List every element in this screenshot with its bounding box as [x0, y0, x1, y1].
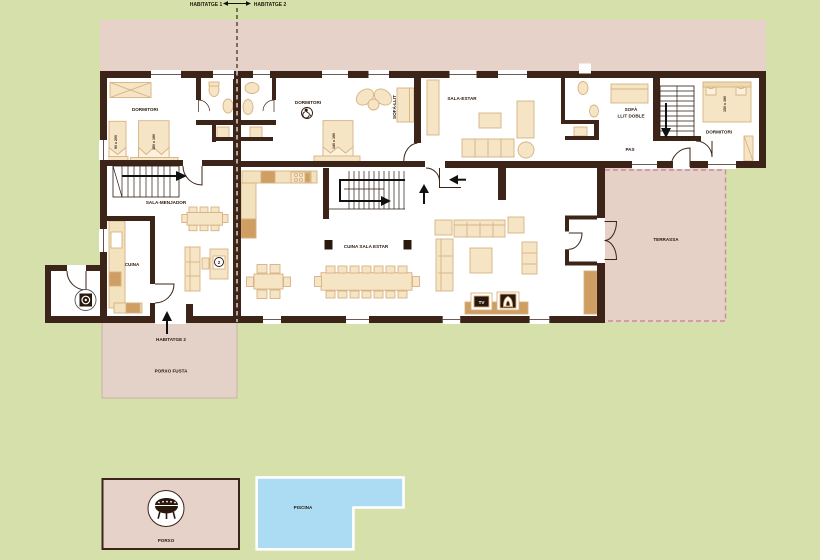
svg-text:SOFÀ-LLIT: SOFÀ-LLIT	[391, 95, 397, 119]
svg-text:90 x 200: 90 x 200	[114, 135, 118, 149]
svg-text:CUINA SALA ESTAR: CUINA SALA ESTAR	[344, 244, 389, 249]
svg-text:SALA-MENJADOR: SALA-MENJADOR	[146, 200, 187, 205]
svg-text:DORMITORI: DORMITORI	[295, 100, 321, 105]
svg-text:PORXO FUSTA: PORXO FUSTA	[155, 369, 189, 374]
svg-text:PORXO: PORXO	[158, 538, 175, 543]
svg-text:SALA-ESTAR: SALA-ESTAR	[447, 96, 477, 101]
svg-text:CUINA: CUINA	[125, 262, 140, 267]
svg-text:HABITATGE 2: HABITATGE 2	[254, 2, 287, 8]
svg-text:LLIT DOBLE: LLIT DOBLE	[617, 114, 644, 119]
svg-text:SOFÀ: SOFÀ	[625, 106, 638, 112]
svg-text:HABITATGE 1: HABITATGE 1	[190, 2, 223, 8]
svg-text:DORMITORI: DORMITORI	[706, 130, 732, 135]
svg-text:140 x 190: 140 x 190	[332, 133, 336, 149]
svg-text:TV: TV	[479, 300, 486, 305]
svg-text:TERRASSA: TERRASSA	[653, 237, 679, 242]
svg-text:PISCINA: PISCINA	[294, 505, 313, 510]
svg-text:HABITATGE 2: HABITATGE 2	[156, 337, 186, 342]
svg-text:DORMITORI: DORMITORI	[132, 107, 158, 112]
svg-text:150 x 190: 150 x 190	[723, 96, 727, 112]
svg-text:PAS: PAS	[625, 147, 634, 152]
svg-text:150 x 190: 150 x 190	[152, 134, 156, 150]
